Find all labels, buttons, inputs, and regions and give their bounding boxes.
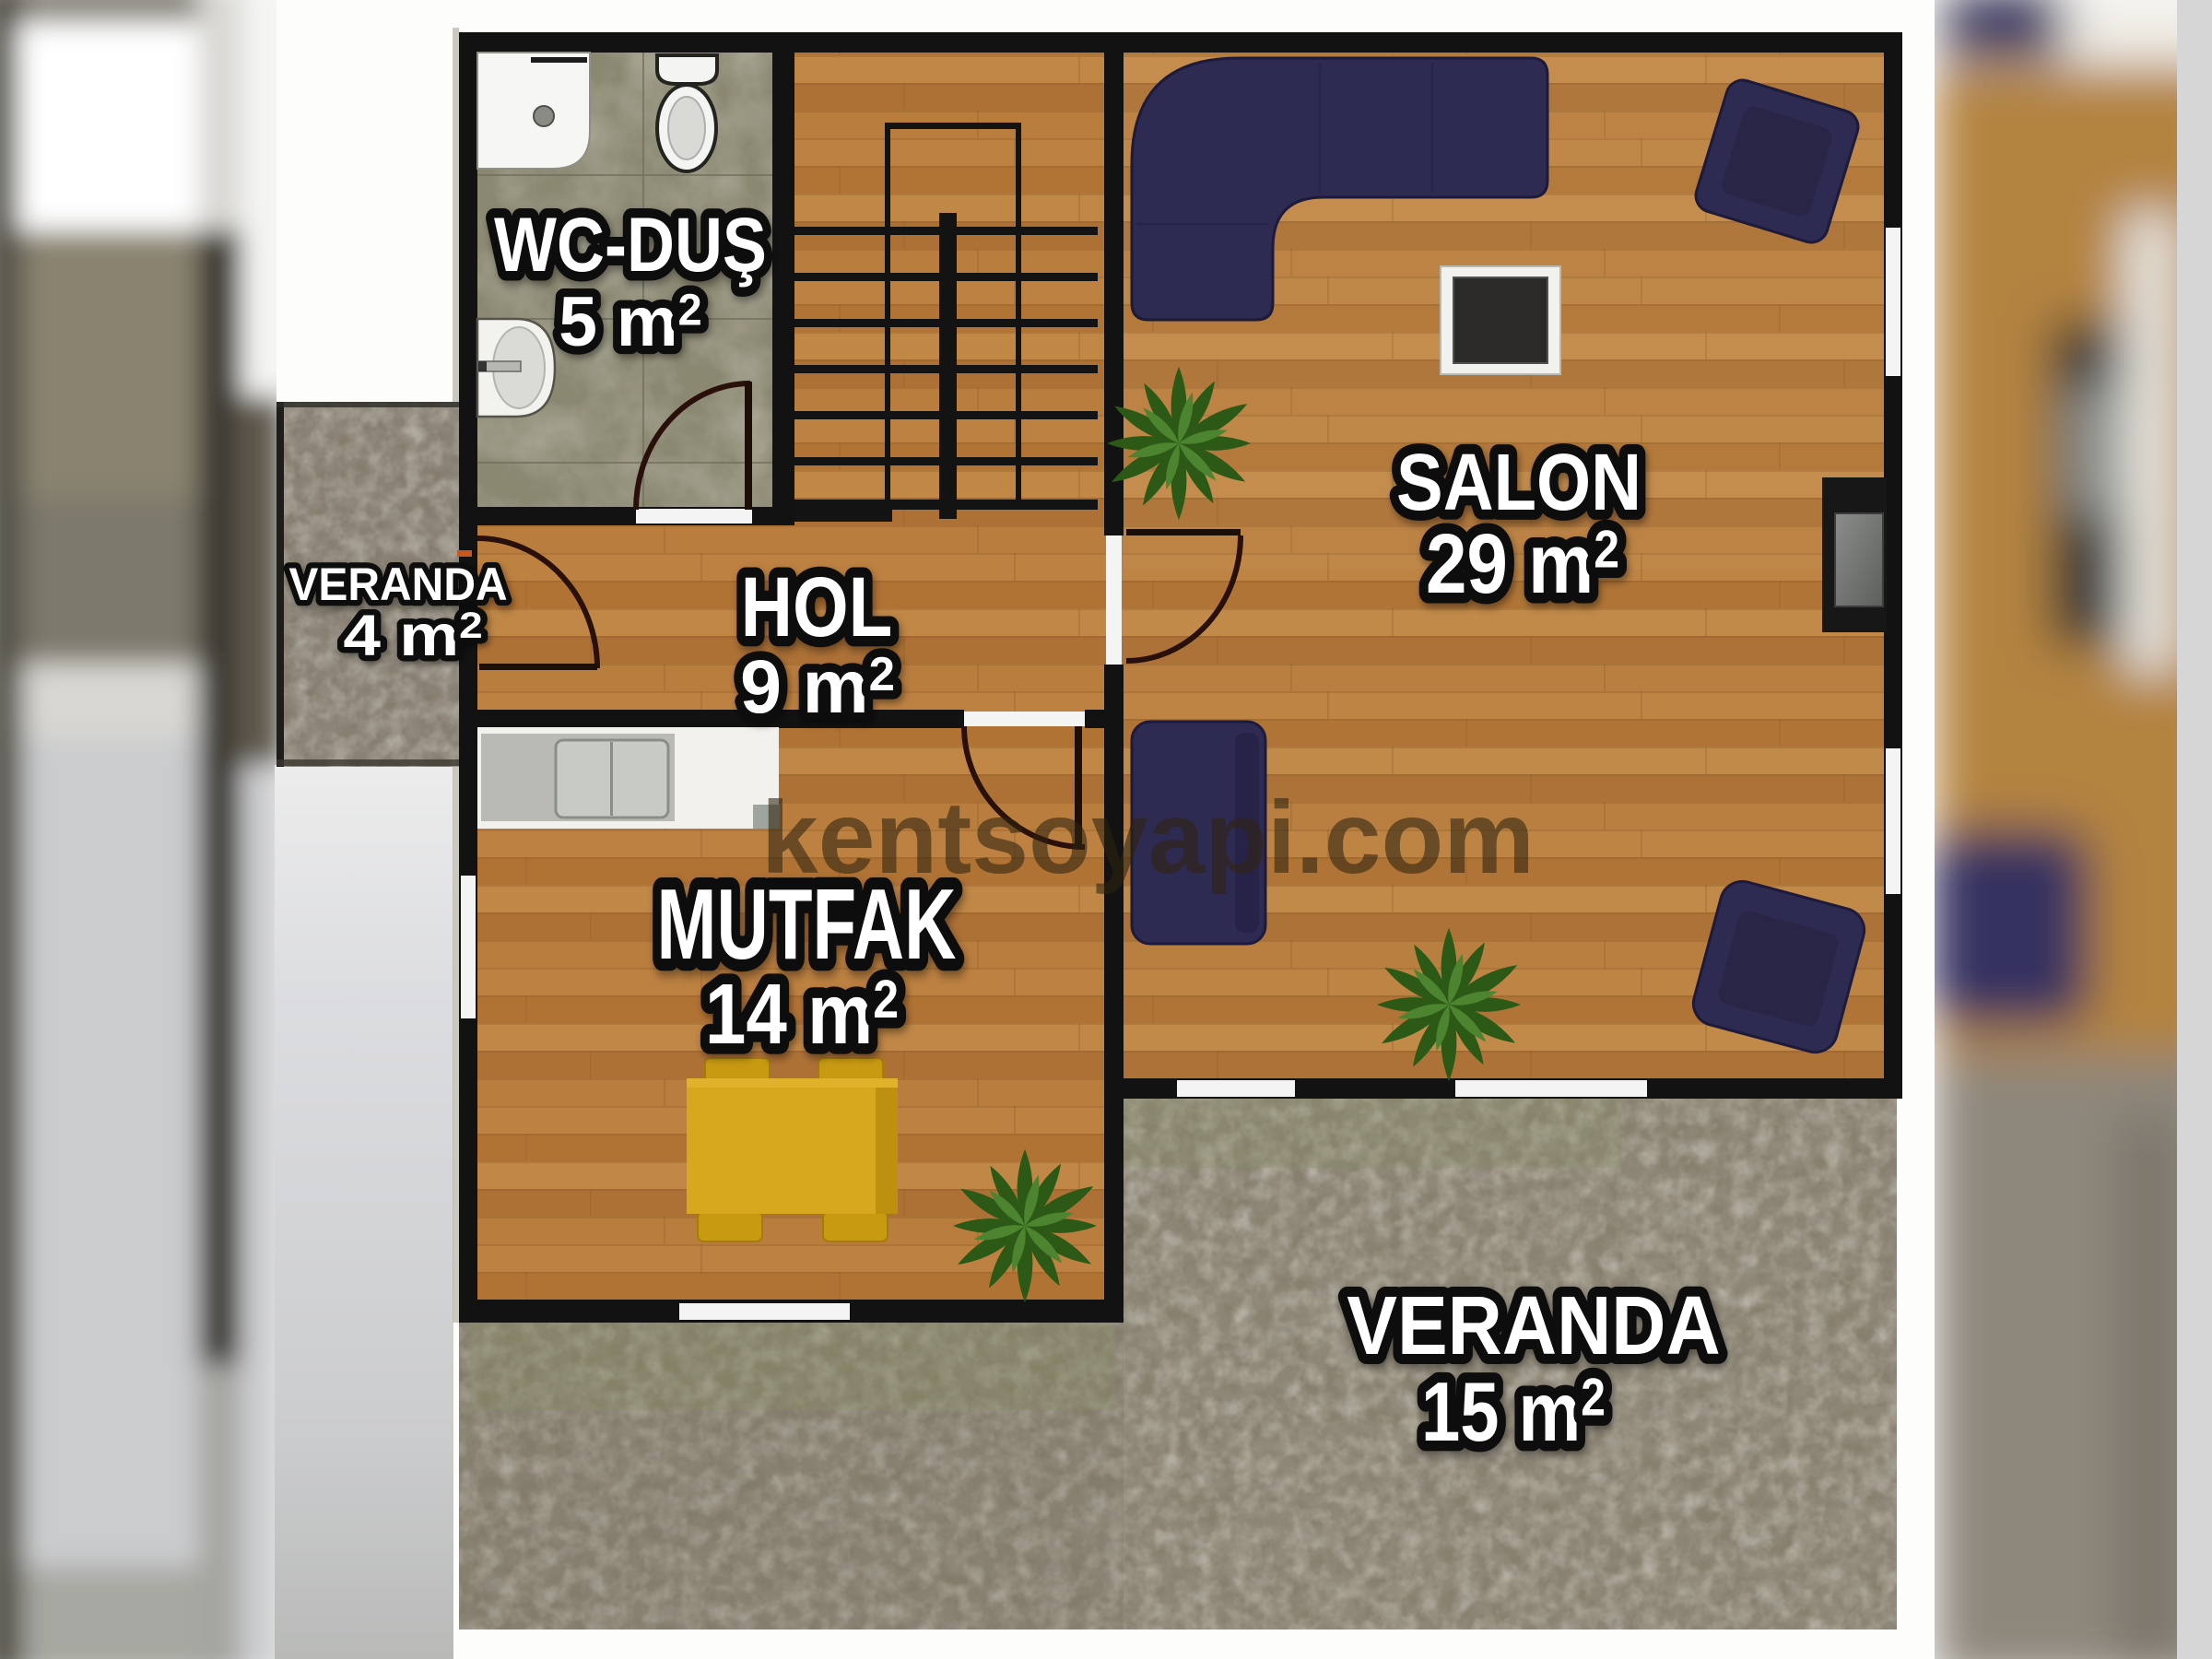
svg-text:14 m2: 14 m2	[705, 968, 899, 1063]
svg-text:HOL: HOL	[741, 560, 893, 654]
svg-text:VERANDA: VERANDA	[1347, 1279, 1720, 1371]
svg-text:SALON: SALON	[1396, 438, 1641, 527]
svg-text:29 m2: 29 m2	[1426, 517, 1619, 611]
svg-text:15 m2: 15 m2	[1421, 1364, 1606, 1458]
svg-text:WC-DUŞ: WC-DUŞ	[494, 201, 767, 288]
svg-text:MUTFAK: MUTFAK	[657, 870, 957, 982]
svg-text:VERANDA: VERANDA	[288, 559, 507, 610]
